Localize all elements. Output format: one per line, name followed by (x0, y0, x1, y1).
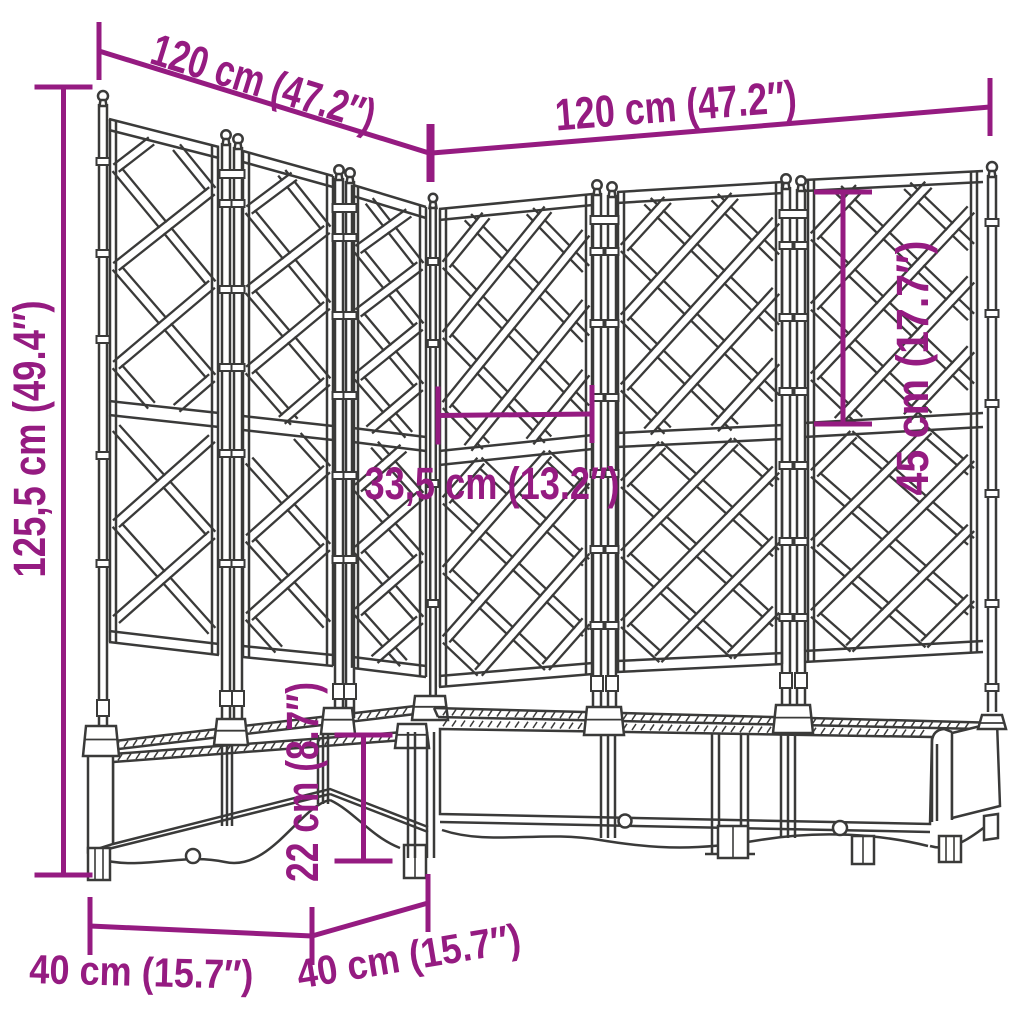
svg-text:33,5 cm (13.2″): 33,5 cm (13.2″) (365, 458, 620, 509)
svg-text:45 cm (17.7″): 45 cm (17.7″) (887, 241, 938, 496)
svg-text:125,5 cm (49.4″): 125,5 cm (49.4″) (4, 301, 55, 578)
svg-text:22 cm (8.7″): 22 cm (8.7″) (277, 682, 328, 882)
svg-text:40 cm (15.7″): 40 cm (15.7″) (29, 946, 254, 998)
